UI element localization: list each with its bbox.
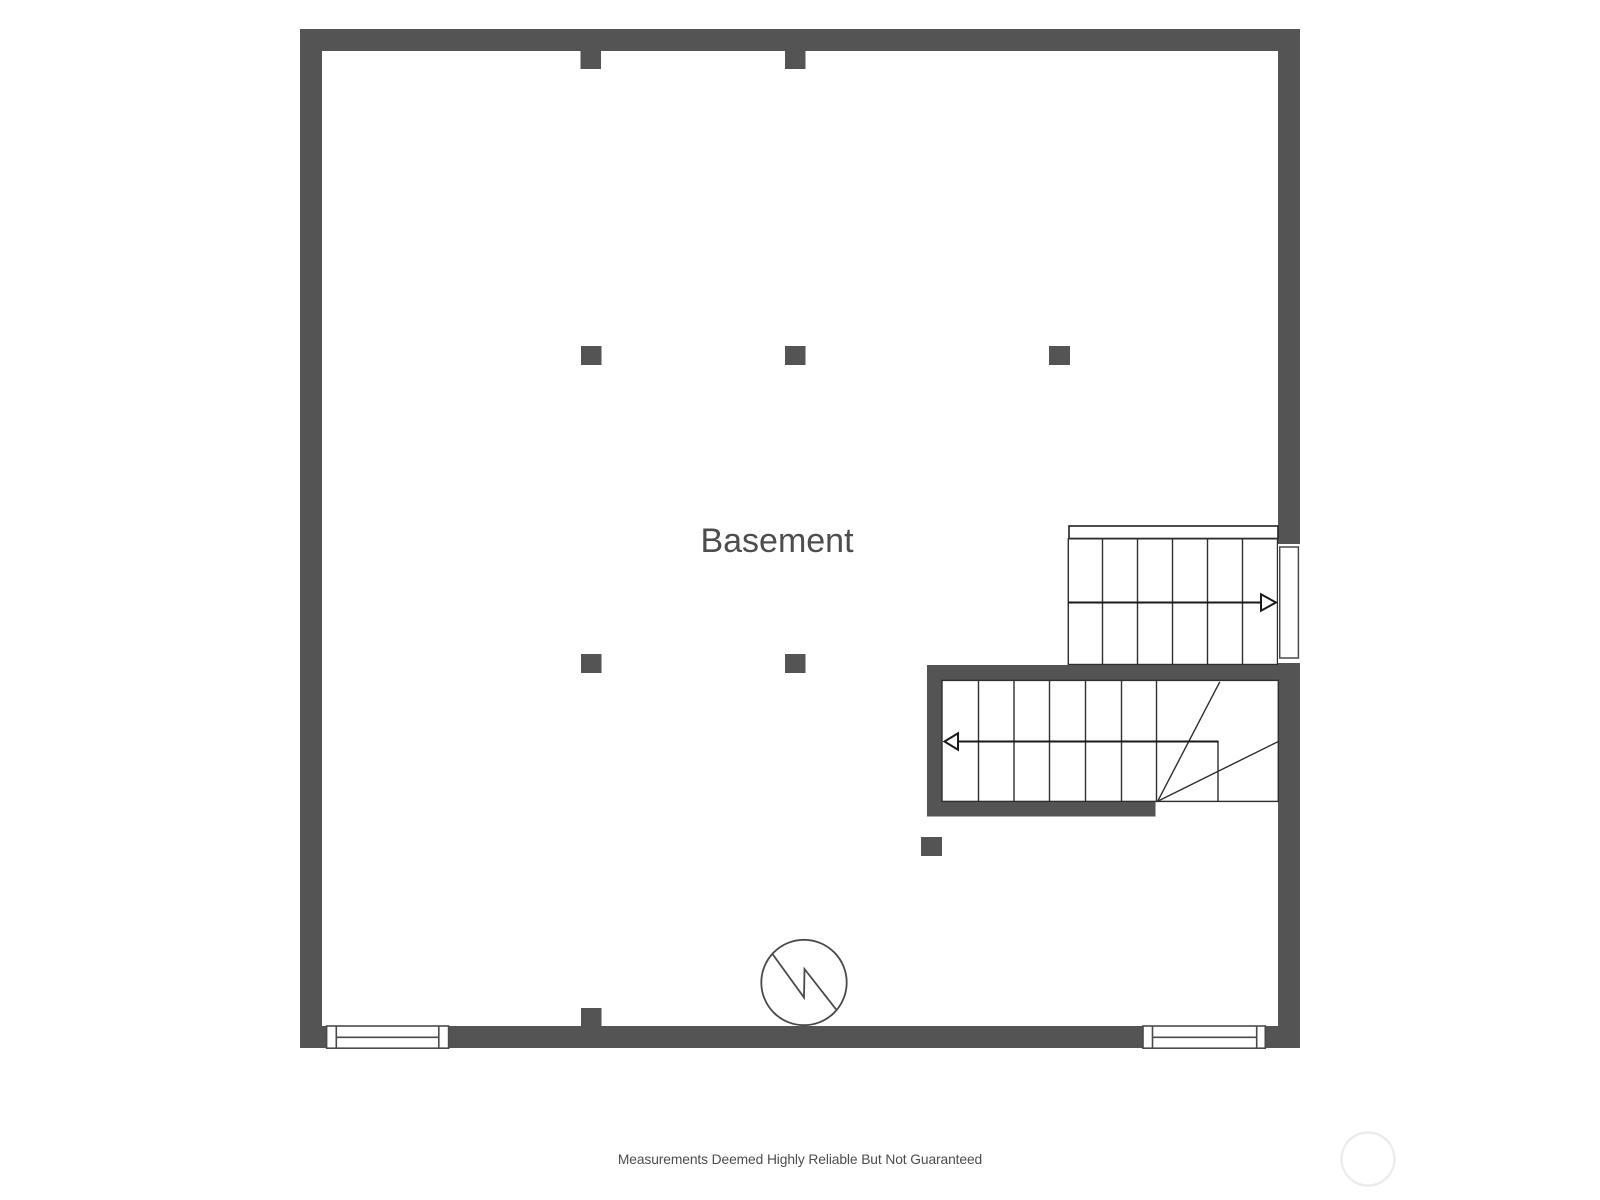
svg-text:Basement: Basement: [700, 522, 854, 560]
svg-text:Measurements Deemed Highly Rel: Measurements Deemed Highly Reliable But …: [618, 1152, 982, 1167]
